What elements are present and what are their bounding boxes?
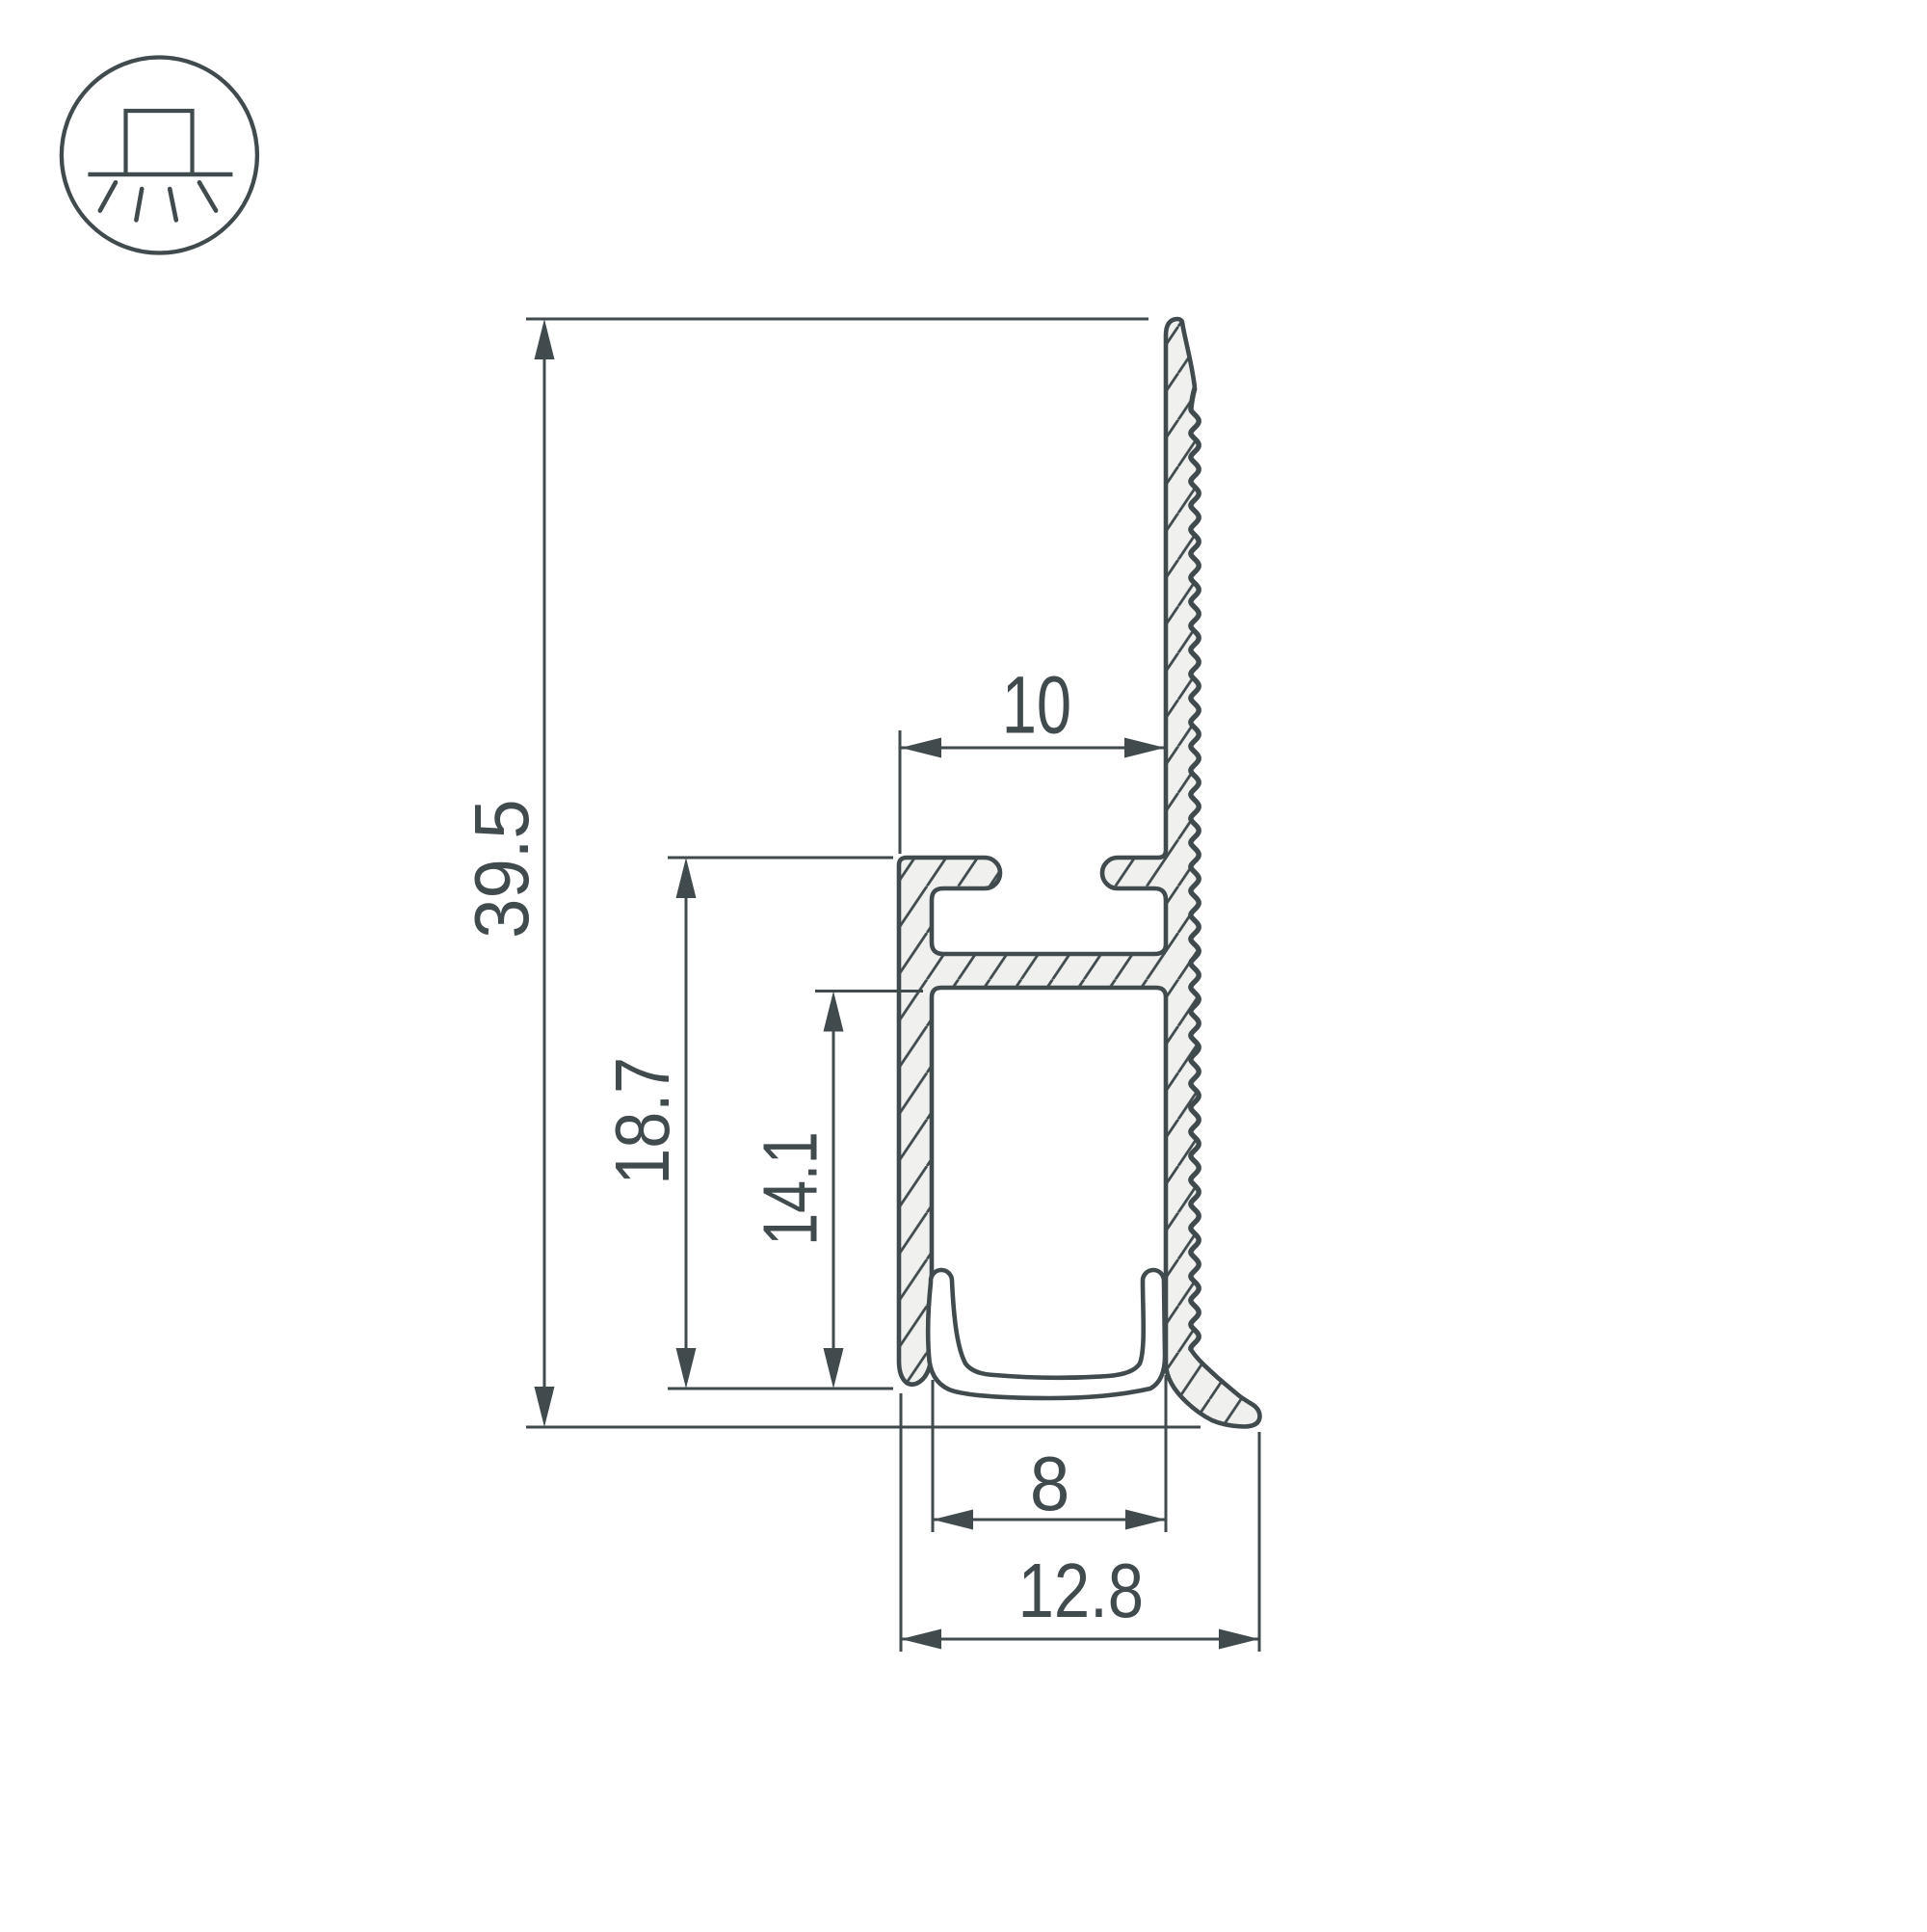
- svg-text:18.7: 18.7: [599, 1057, 685, 1185]
- svg-text:10: 10: [1002, 659, 1071, 750]
- svg-text:12.8: 12.8: [1018, 1548, 1144, 1634]
- svg-text:39.5: 39.5: [459, 799, 544, 938]
- svg-text:8: 8: [1030, 1441, 1069, 1526]
- svg-text:14.1: 14.1: [748, 1131, 833, 1245]
